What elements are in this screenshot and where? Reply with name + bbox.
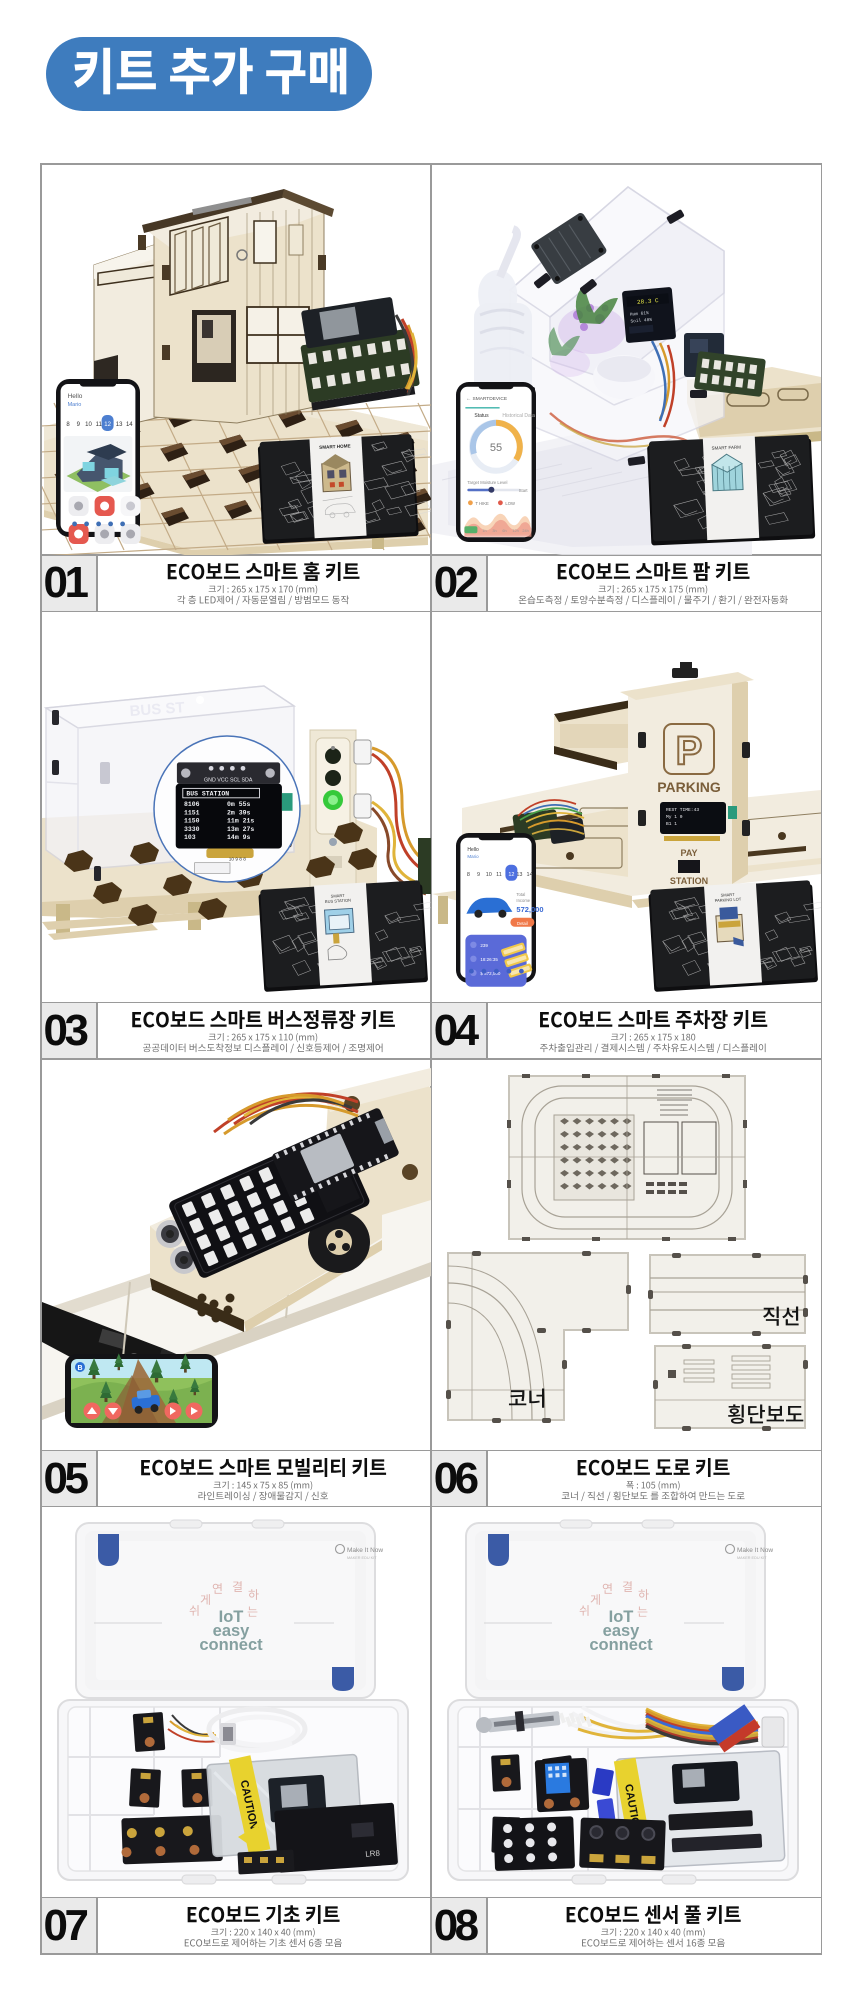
svg-text:11m 21s: 11m 21s <box>227 818 254 825</box>
svg-text:MAKER EDU KIT: MAKER EDU KIT <box>737 1556 767 1560</box>
svg-text:12h: 12h <box>512 529 518 533</box>
svg-text:2m 39s: 2m 39s <box>227 809 250 816</box>
svg-text:14: 14 <box>125 422 132 428</box>
svg-text:Detail: Detail <box>517 921 528 926</box>
svg-text:1150: 1150 <box>183 818 199 825</box>
svg-text:103: 103 <box>183 834 195 841</box>
svg-text:My 1 0: My 1 0 <box>666 814 683 820</box>
svg-text:12: 12 <box>104 422 111 428</box>
svg-text:connect: connect <box>199 1636 263 1654</box>
svg-text:1151: 1151 <box>183 809 199 816</box>
svg-text:11: 11 <box>496 872 502 878</box>
svg-text:24h: 24h <box>522 529 528 533</box>
svg-text:REST TIME:43: REST TIME:43 <box>666 807 699 813</box>
svg-text:Mario: Mario <box>467 854 479 859</box>
svg-text:11: 11 <box>95 422 102 428</box>
svg-text:LR8: LR8 <box>364 1849 380 1859</box>
svg-text:Make It Now: Make It Now <box>347 1547 383 1554</box>
svg-text:Hello: Hello <box>467 847 479 853</box>
svg-text:connect: connect <box>589 1636 653 1654</box>
svg-text:B1 1: B1 1 <box>666 821 677 827</box>
svg-text:Total: Total <box>516 892 525 897</box>
svg-text:10 9 8 8: 10 9 8 8 <box>228 856 245 862</box>
svg-text:8: 8 <box>467 872 470 878</box>
svg-text:18:26:35: 18:26:35 <box>480 957 498 962</box>
svg-text:Mario: Mario <box>67 402 81 408</box>
svg-text:3330: 3330 <box>183 826 199 833</box>
svg-text:P: P <box>675 729 702 773</box>
svg-text:572,000: 572,000 <box>516 905 543 914</box>
svg-text:14m 9s: 14m 9s <box>227 834 250 841</box>
svg-text:12: 12 <box>508 872 514 878</box>
svg-text:GND VCC SCL SDA: GND VCC SCL SDA <box>204 777 253 783</box>
svg-text:Hello: Hello <box>67 393 82 400</box>
svg-text:STATION: STATION <box>670 876 708 886</box>
svg-text:MAKER EDU KIT: MAKER EDU KIT <box>347 1556 377 1560</box>
svg-text:Make It Now: Make It Now <box>737 1547 773 1554</box>
svg-text:3h: 3h <box>492 529 496 533</box>
svg-text:10: 10 <box>485 872 491 878</box>
svg-text:6h: 6h <box>502 529 506 533</box>
svg-text:10: 10 <box>85 422 92 428</box>
svg-text:Start: Start <box>518 487 528 492</box>
svg-text:PAY: PAY <box>680 848 697 858</box>
svg-text:Income: Income <box>516 898 530 903</box>
svg-text:T HIKE: T HIKE <box>475 500 489 505</box>
svg-text:BUS STATION: BUS STATION <box>186 791 229 798</box>
svg-text:55: 55 <box>490 441 502 453</box>
svg-text:B: B <box>77 1365 82 1372</box>
svg-text:239: 239 <box>480 943 488 948</box>
svg-text:Status: Status <box>474 412 489 418</box>
svg-text:LOW: LOW <box>505 500 515 505</box>
svg-text:0m 55s: 0m 55s <box>227 801 250 808</box>
svg-text:Historical Data: Historical Data <box>502 412 535 418</box>
svg-text:13m 27s: 13m 27s <box>227 826 254 833</box>
svg-text:14: 14 <box>526 872 532 878</box>
svg-text:13: 13 <box>115 422 122 428</box>
svg-text:9: 9 <box>477 872 480 878</box>
svg-text:PARKING: PARKING <box>657 779 721 795</box>
svg-text:8106: 8106 <box>183 801 199 808</box>
svg-text:Target Moisture Level: Target Moisture Level <box>467 479 507 484</box>
svg-text:1h: 1h <box>482 529 486 533</box>
svg-text:← SMARTDEVICE: ← SMARTDEVICE <box>466 395 507 401</box>
